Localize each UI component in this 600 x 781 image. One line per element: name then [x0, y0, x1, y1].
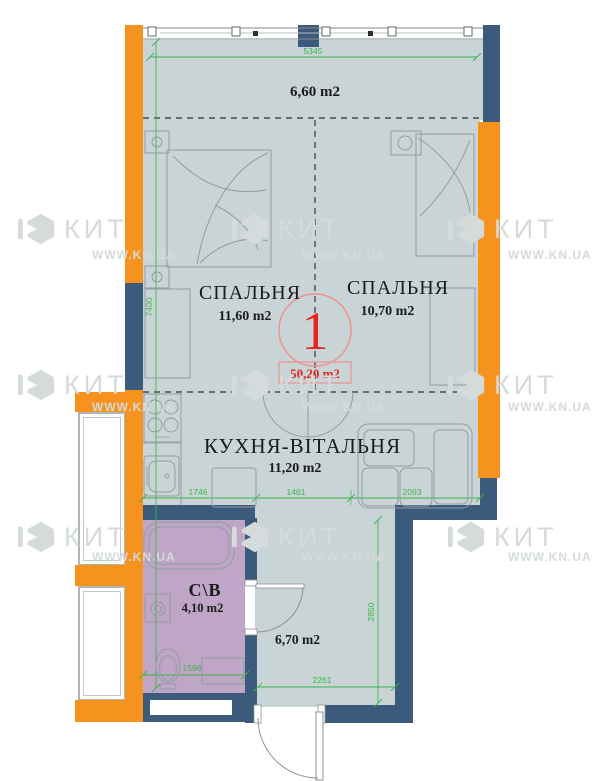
watermark-brand-text: КИТ [278, 522, 342, 553]
watermark-site: WWW.KN.UA [92, 248, 176, 262]
kit-logo-icon [232, 368, 270, 402]
watermark-brand-text: КИТ [494, 370, 558, 401]
kitchen-area-label: 11,20 m2 [170, 461, 420, 477]
watermark-site: WWW.KN.UA [508, 550, 592, 564]
wall-left-top [125, 25, 143, 283]
bedroom1-area-label: 11,60 m2 [190, 309, 300, 325]
wall-stub-3 [75, 700, 125, 722]
watermark-brand: КИТ [18, 368, 128, 402]
kit-logo-icon [232, 520, 270, 554]
wall-right-pilaster [478, 122, 500, 478]
left-window-bottom-frame [83, 591, 121, 696]
bedroom2-area-label: 10,70 m2 [330, 304, 445, 320]
kit-logo-icon [18, 520, 56, 554]
window-mullion [298, 25, 319, 47]
watermark-brand: КИТ [18, 520, 128, 554]
watermark-site: WWW.KN.UA [92, 550, 176, 564]
bathroom-name-label: С\В [165, 580, 245, 601]
kitchen-name-label: КУХНЯ-ВІТАЛЬНЯ [165, 434, 440, 459]
kit-logo-icon [448, 520, 486, 554]
bathroom-area-label: 4,10 m2 [160, 601, 245, 616]
floor-plan: 5345 7400 1746 1461 2093 1596 2261 2850 [0, 0, 600, 781]
watermark-brand-text: КИТ [494, 214, 558, 245]
watermark-brand-text: КИТ [278, 370, 342, 401]
watermark-site: WWW.KN.UA [508, 248, 592, 262]
watermark-site: WWW.KN.UA [92, 400, 176, 414]
watermark-brand: КИТ [448, 520, 558, 554]
watermark-site: WWW.KN.UA [302, 400, 386, 414]
watermark-brand-text: КИТ [64, 522, 128, 553]
watermark-site: WWW.KN.UA [508, 400, 592, 414]
kit-logo-icon [18, 212, 56, 246]
watermark-site: WWW.KN.UA [302, 550, 386, 564]
watermark-brand: КИТ [232, 520, 342, 554]
watermark-brand-text: КИТ [64, 214, 128, 245]
wall-stub-2 [75, 565, 125, 586]
watermark-brand-text: КИТ [278, 214, 342, 245]
kit-logo-icon [232, 212, 270, 246]
kit-logo-icon [18, 368, 56, 402]
bedroom1-name-label: СПАЛЬНЯ [180, 282, 320, 305]
bathroom-bottom-window [150, 700, 232, 715]
watermark-brand: КИТ [448, 368, 558, 402]
wall-bathroom-top [143, 505, 255, 520]
kit-logo-icon [448, 368, 486, 402]
watermark-brand-text: КИТ [494, 522, 558, 553]
bedroom2-name-label: СПАЛЬНЯ [328, 277, 468, 300]
hallway-area-label: 6,70 m2 [250, 632, 345, 648]
left-window-bottom [78, 586, 126, 701]
watermark-site: WWW.KN.UA [302, 248, 386, 262]
watermark-brand-text: КИТ [64, 370, 128, 401]
wall-left-mid [125, 283, 143, 390]
wall-right-top [483, 25, 500, 122]
entry-door [254, 705, 325, 780]
kit-logo-icon [448, 212, 486, 246]
balcony-floor [143, 40, 483, 120]
balcony-area-label: 6,60 m2 [240, 84, 390, 101]
watermark-brand: КИТ [232, 368, 342, 402]
watermark-brand: КИТ [18, 212, 128, 246]
wall-hallway-bottom-right [322, 705, 413, 723]
watermark-brand: КИТ [448, 212, 558, 246]
wall-hallway-right [395, 515, 413, 723]
watermark-brand: КИТ [232, 212, 342, 246]
